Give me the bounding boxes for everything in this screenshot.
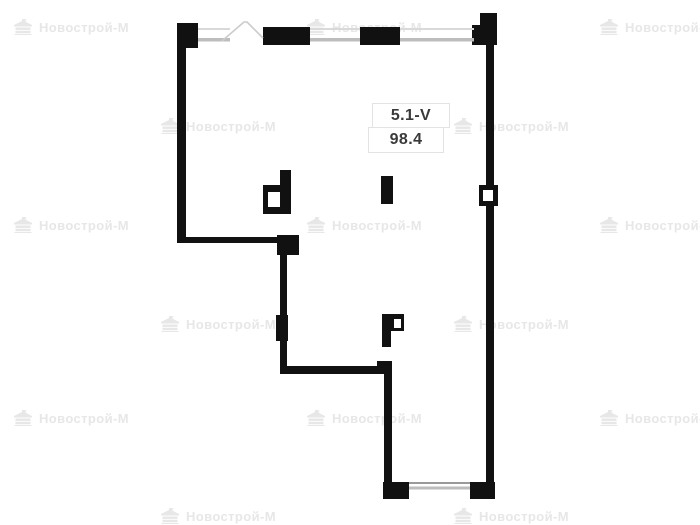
wall-step-horizontal-2 (280, 366, 392, 374)
shaft-symbol-bar (381, 176, 393, 204)
wall-left-lower (280, 243, 287, 370)
window-3-inner-band (400, 38, 474, 42)
wall-top-pier-b (360, 27, 400, 45)
shaft-symbols (263, 170, 498, 347)
wall-block-bottom-left (383, 482, 409, 499)
unit-label: 5.1-V 98.4 (368, 103, 450, 153)
unit-id: 5.1-V (372, 103, 450, 128)
floorplan-image: Новострой-М Новострой-М Новострой-М (0, 0, 700, 525)
wall-corner-top-right (480, 13, 497, 45)
windows (198, 28, 474, 490)
window-1-outer-line (198, 28, 230, 30)
wall-corner-step-2 (377, 361, 392, 374)
wall-corner-top-left (177, 23, 198, 48)
wall-right (486, 40, 494, 485)
wall-left (177, 48, 186, 243)
wall-pier-left-lower (276, 315, 288, 341)
window-bottom-inner-line (409, 482, 470, 484)
window-2-inner-band (310, 38, 360, 42)
window-3-outer-line (400, 28, 474, 30)
wall-left-bottom (384, 374, 392, 486)
wall-top-segment-a (263, 27, 310, 45)
shaft-symbol-d (263, 170, 291, 214)
floor-plan (0, 0, 700, 525)
walls (177, 13, 497, 499)
window-bottom-outer-band (409, 487, 470, 490)
unit-area: 98.4 (368, 127, 444, 153)
window-2-outer-line (310, 28, 360, 30)
shaft-symbol-p (382, 314, 404, 347)
wall-niche-symbol-right (479, 185, 498, 206)
